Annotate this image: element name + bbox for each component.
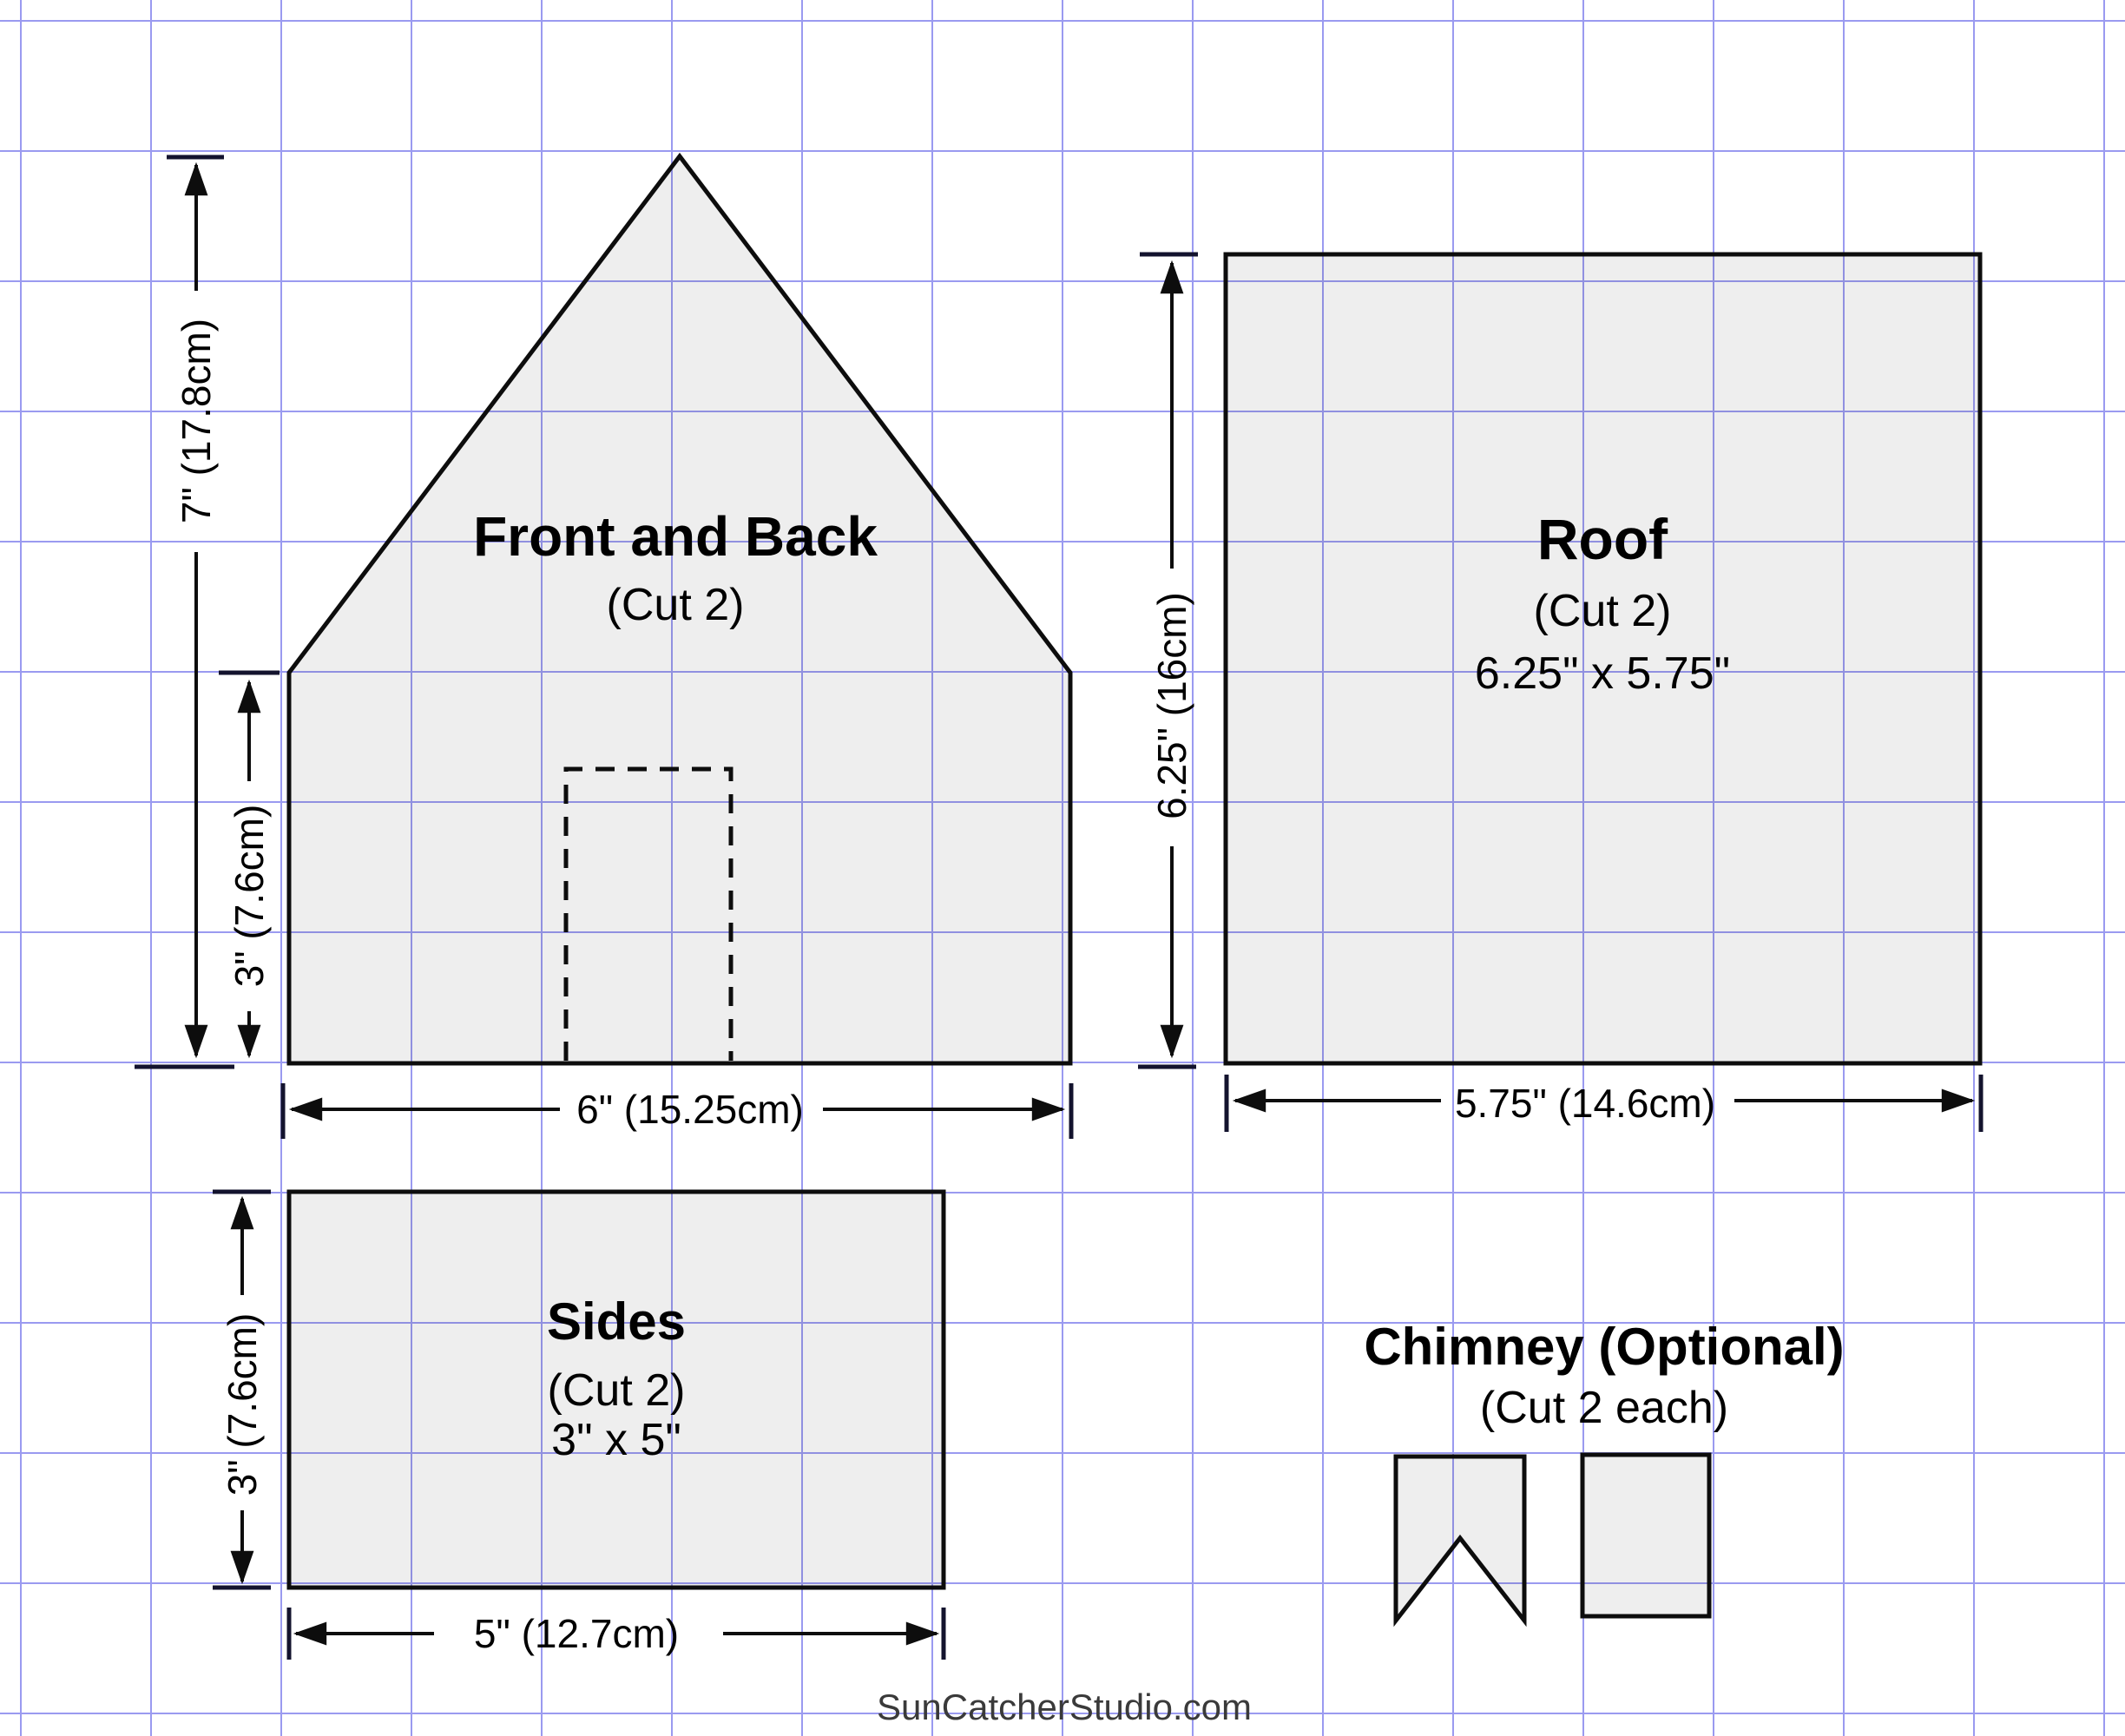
sides-title: Sides (547, 1292, 686, 1351)
dim-label-front-total-height: 7" (17.8cm) (174, 319, 219, 523)
dim-roof-width: 5.75" (14.6cm) (1227, 1075, 1981, 1132)
dim-front-width: 6" (15.25cm) (283, 1083, 1071, 1139)
dim-label-sides-height: 3" (7.6cm) (220, 1313, 265, 1496)
dim-label-front-width: 6" (15.25cm) (576, 1087, 804, 1132)
front-and-back-title: Front and Back (473, 505, 878, 568)
watermark-text: SunCatcherStudio.com (877, 1687, 1252, 1727)
roof-cut-note: (Cut 2) (1534, 586, 1672, 636)
sides-cut-note: (Cut 2) (548, 1365, 686, 1416)
dim-label-sides-width: 5" (12.7cm) (474, 1611, 679, 1656)
dim-roof-height: 6.25" (16cm) (1138, 254, 1198, 1067)
gingerbread-house-template-diagram: 7" (17.8cm) 3" (7.6cm) 6" (15.25cm) 6.25… (0, 0, 2125, 1736)
grid-background: 7" (17.8cm) 3" (7.6cm) 6" (15.25cm) 6.25… (0, 0, 2125, 1736)
dim-front-total-height: 7" (17.8cm) (135, 157, 234, 1067)
roof-size-note: 6.25" x 5.75" (1475, 648, 1730, 699)
dim-label-front-wall-height: 3" (7.6cm) (227, 805, 272, 988)
dim-label-roof-width: 5.75" (14.6cm) (1455, 1081, 1715, 1126)
chimney-cut-note: (Cut 2 each) (1480, 1383, 1728, 1433)
dim-label-roof-height: 6.25" (16cm) (1149, 592, 1194, 819)
sides-size-note: 3" x 5" (551, 1415, 681, 1465)
dim-sides-width: 5" (12.7cm) (289, 1608, 944, 1660)
dim-sides-height: 3" (7.6cm) (213, 1192, 271, 1588)
chimney-notched-piece (1396, 1457, 1524, 1621)
chimney-title: Chimney (Optional) (1364, 1318, 1844, 1376)
front-and-back-cut-note: (Cut 2) (607, 580, 745, 630)
roof-title: Roof (1537, 507, 1668, 571)
dim-front-wall-height: 3" (7.6cm) (219, 673, 280, 1055)
chimney-plain-piece (1582, 1455, 1709, 1616)
